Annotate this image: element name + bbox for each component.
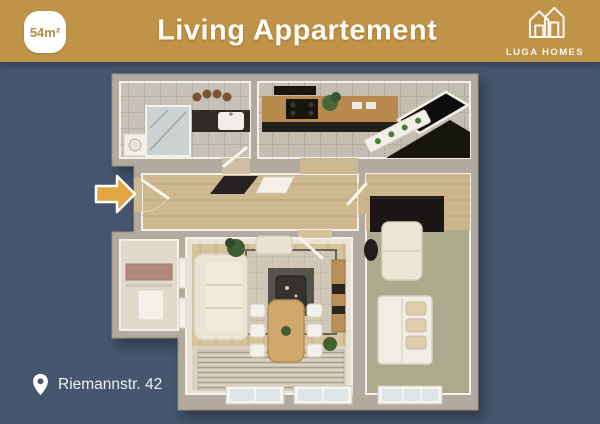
brand-logo: LUGA HOMES [502,3,588,58]
floor-plan [0,0,600,424]
radiator [179,258,186,288]
floor-plan-body [112,74,478,410]
dark-chair [364,239,378,261]
area-badge: 54m² [24,11,66,53]
windows [226,386,442,404]
dining-set [250,300,322,362]
brand-name: LUGA HOMES [502,47,588,58]
address-text: Riemannstr. 42 [58,376,162,394]
page-title: Living Appartement [157,15,437,48]
closet-box [138,290,164,320]
sideboard [332,260,345,332]
double-bed [378,296,432,364]
wall-tv [274,86,316,95]
luga-homes-houses-icon [522,3,568,41]
header: 54m² Living Appartement LUGA HOMES [0,0,600,62]
corner-plant [323,337,337,351]
area-badge-label: 54m² [30,25,60,40]
closet-shelf [126,264,172,280]
sofa [194,254,248,340]
window [294,386,352,404]
address: Riemannstr. 42 [32,373,162,396]
counter-front [262,122,398,132]
entrance-arrow [96,176,135,212]
washer-door [129,139,141,151]
apartment-flyer: { "header": { "title": "Living Apparteme… [0,0,600,424]
location-pin-icon [32,373,49,396]
window [226,386,284,404]
ottoman [256,236,292,254]
radiator [179,298,186,328]
window [378,386,442,404]
cooktop [286,99,318,119]
table-plant [281,326,291,336]
love-seat [382,222,422,280]
living-room [179,236,345,390]
